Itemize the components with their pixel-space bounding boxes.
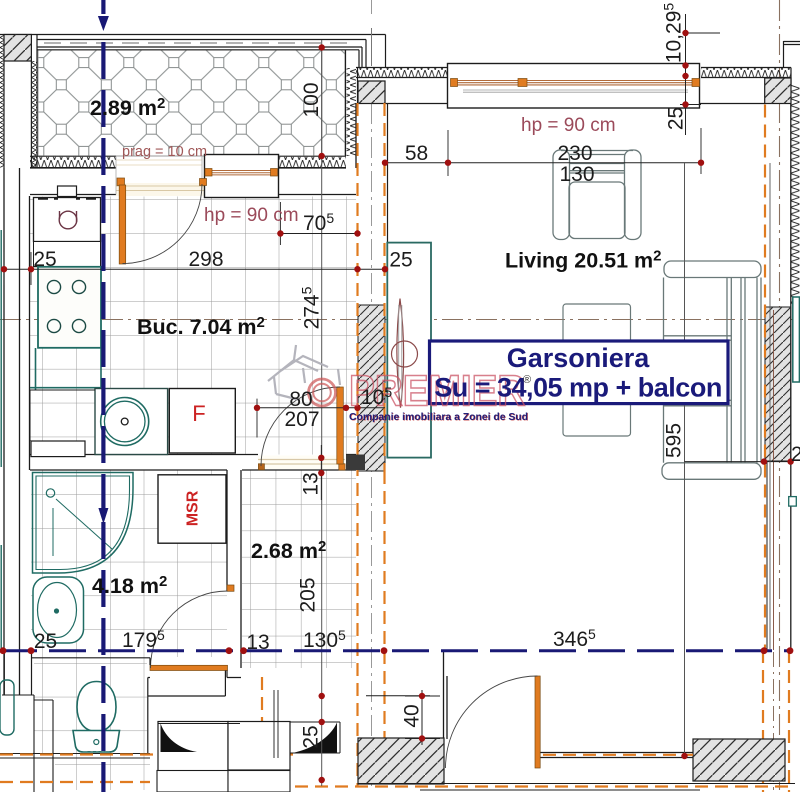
svg-text:100: 100 <box>300 82 323 117</box>
svg-text:207: 207 <box>284 408 319 431</box>
svg-text:Buc. 7.04 m2: Buc. 7.04 m2 <box>137 314 265 339</box>
svg-text:prag = 10 cm: prag = 10 cm <box>122 144 207 160</box>
svg-text:Companie imobiliara a Zonei de: Companie imobiliara a Zonei de Sud <box>349 412 528 423</box>
svg-text:25: 25 <box>300 725 323 748</box>
svg-text:595: 595 <box>663 423 686 458</box>
svg-text:2.68 m2: 2.68 m2 <box>251 538 326 563</box>
svg-text:25: 25 <box>665 107 688 130</box>
svg-text:13: 13 <box>300 472 323 495</box>
svg-text:hp = 90 cm: hp = 90 cm <box>204 205 299 226</box>
svg-text:230: 230 <box>557 142 592 165</box>
svg-text:4.18 m2: 4.18 m2 <box>92 573 167 598</box>
svg-text:Garsoniera: Garsoniera <box>507 343 651 373</box>
svg-text:25: 25 <box>791 443 800 466</box>
svg-text:®: ® <box>523 374 531 386</box>
svg-text:205: 205 <box>297 577 320 612</box>
svg-text:130: 130 <box>559 163 594 186</box>
svg-text:F: F <box>192 401 205 426</box>
svg-text:MSR: MSR <box>185 490 202 526</box>
svg-text:13: 13 <box>246 631 269 654</box>
svg-text:hp = 90 cm: hp = 90 cm <box>521 115 616 136</box>
svg-text:298: 298 <box>188 248 223 271</box>
svg-text:10,295: 10,295 <box>661 3 686 64</box>
svg-text:25: 25 <box>34 630 57 653</box>
svg-text:25: 25 <box>33 248 56 271</box>
svg-text:25: 25 <box>389 249 412 272</box>
svg-text:Living 20.51 m2: Living 20.51 m2 <box>505 248 662 273</box>
svg-text:58: 58 <box>405 142 428 165</box>
svg-text:Su = 34,05 mp + balcon: Su = 34,05 mp + balcon <box>434 373 722 403</box>
svg-text:2.89 m2: 2.89 m2 <box>90 95 165 120</box>
svg-text:40: 40 <box>401 704 424 727</box>
